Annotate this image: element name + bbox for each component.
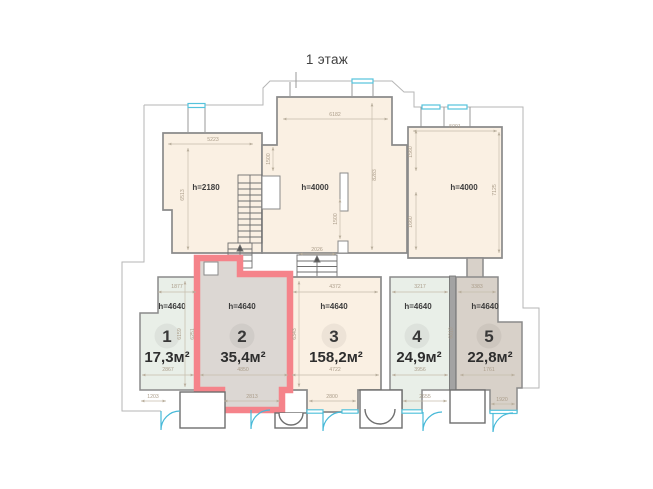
room-upper-right-shape [408,127,502,258]
dim-label: 1920 [496,397,508,403]
room-upper-left-shape [163,133,262,253]
units: h=4640 1 17,3м² h=4640 3 158,2м² h=4640 … [140,258,522,412]
dim-label: 7125 [492,184,498,196]
room-upper-center: h=4000 [262,97,407,253]
storefront-window [342,410,358,413]
room-height-label: h=4000 [450,183,478,192]
dim-label: 1761 [483,367,495,373]
unit-number: 5 [484,327,493,346]
dim-label: 4722 [329,367,341,373]
door-icon [423,412,442,431]
unit-height-label: h=4640 [228,302,256,311]
unit-height-label: h=4640 [158,302,186,311]
dim-label: 8283 [372,169,378,181]
unit-number: 4 [412,327,422,346]
dim-label: 4372 [329,284,341,290]
window-icon [448,105,467,109]
unit-number: 1 [162,327,171,346]
door-icon [161,411,180,430]
unit-number: 3 [329,327,338,346]
floor-title: 1 этаж [306,52,348,67]
dim-label: 1660 [408,216,414,228]
unit-height-label: h=4640 [404,302,432,311]
unit-height-label: h=4640 [320,302,348,311]
room-height-label: h=2180 [192,183,220,192]
window-icon [352,79,373,83]
dim-label: 3383 [471,284,483,290]
stair-landing [262,176,280,209]
dim-label: 5091 [449,124,461,130]
dim-label: 6343 [292,328,298,340]
porch [180,392,225,428]
unit-area: 17,3м² [144,349,189,366]
unit-area: 35,4м² [220,349,265,366]
dim-label: 2800 [326,394,338,400]
dim-label: 1560 [408,146,414,158]
floor-plan: 1 этаж h=2180 h=4000 h=4000 [0,0,653,489]
stair-up-arrow [314,256,320,262]
dim-label: 1877 [171,284,183,290]
window-icon [188,104,205,108]
dim-label: 3217 [414,284,426,290]
unit-1[interactable]: h=4640 1 17,3м² [140,277,196,390]
shaft-stub [467,258,483,278]
unit-2[interactable]: h=4640 2 35,4м² [197,258,290,410]
unit-2-shaft [204,262,218,275]
door-icon [323,412,342,431]
dim-label: 6010 [449,327,455,339]
door-icon [493,413,513,432]
room-upper-right: h=4000 [408,127,502,278]
wall-notch [338,241,348,253]
dim-label: 6159 [177,328,183,340]
porch [450,390,485,423]
dim-label: 6513 [180,189,186,201]
dim-label: 1500 [266,153,272,165]
window-icon [422,105,440,109]
unit-height-label: h=4640 [471,302,499,311]
dim-label: 1500 [333,213,339,225]
unit-number: 2 [237,327,246,346]
unit-area: 22,8м² [467,349,512,366]
dim-label: 6251 [190,328,196,340]
room-upper-center-shape [262,97,407,253]
unit-area: 24,9м² [396,349,441,366]
dim-label: 6182 [329,112,341,118]
wall-slot [340,173,348,211]
dim-label: 2867 [162,367,174,373]
dim-label: 2813 [246,394,258,400]
dim-label: 1203 [147,394,159,400]
storefront-window [307,410,323,413]
dim-label: 3956 [414,367,426,373]
unit-area: 158,2м² [309,349,363,366]
dim-label: 4850 [237,367,249,373]
room-height-label: h=4000 [301,183,329,192]
dim-label: 2026 [311,247,323,253]
staircase-entry [297,255,337,277]
dim-label: 5223 [207,137,219,143]
room-upper-left: h=2180 [163,133,262,253]
dim-label: 2655 [419,394,431,400]
storefront-window [402,410,422,413]
